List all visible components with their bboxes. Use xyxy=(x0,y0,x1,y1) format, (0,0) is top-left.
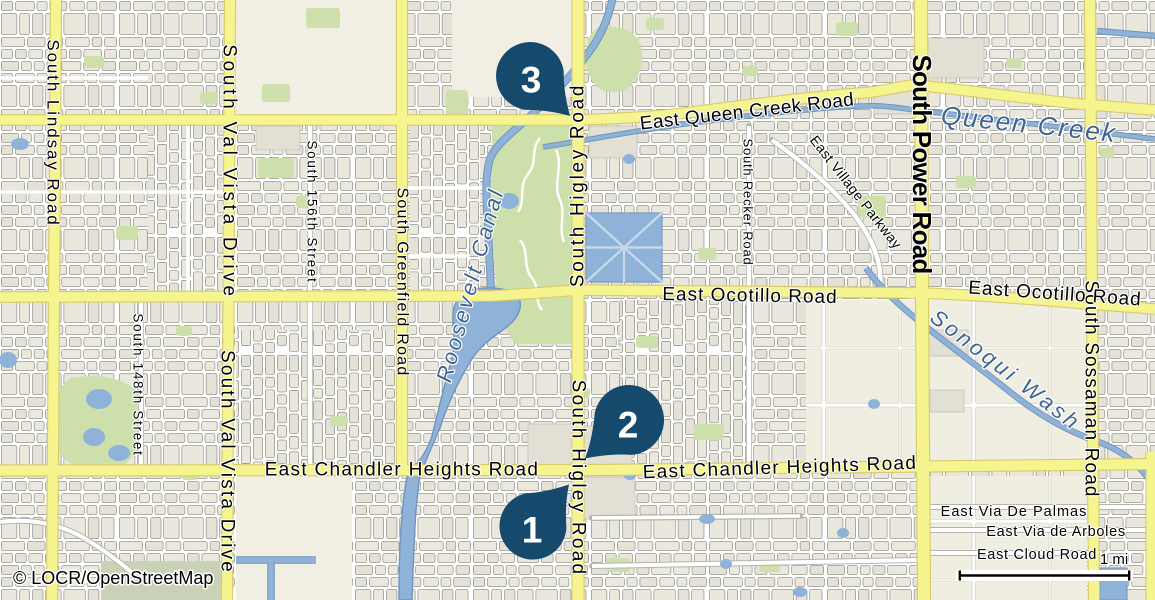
svg-text:South Lindsay Road: South Lindsay Road xyxy=(44,39,63,226)
svg-text:East Via De Palmas: East Via De Palmas xyxy=(941,504,1088,520)
svg-text:South Val Vista Drive: South Val Vista Drive xyxy=(219,44,240,299)
svg-text:1: 1 xyxy=(522,510,543,551)
svg-text:South 156th Street: South 156th Street xyxy=(305,140,320,283)
svg-text:East Cloud Road: East Cloud Road xyxy=(977,547,1097,563)
svg-text:South Recker Road: South Recker Road xyxy=(741,138,756,265)
svg-text:South 148th Street: South 148th Street xyxy=(131,313,146,456)
svg-text:South Greenfield Road: South Greenfield Road xyxy=(394,187,411,376)
svg-text:South Higley Road: South Higley Road xyxy=(568,380,589,577)
svg-text:© LOCR/OpenStreetMap: © LOCR/OpenStreetMap xyxy=(13,568,213,588)
svg-text:2: 2 xyxy=(618,405,639,446)
svg-text:East Via de Arboles: East Via de Arboles xyxy=(986,524,1126,540)
svg-text:1 mi: 1 mi xyxy=(1100,551,1128,568)
svg-text:East Chandler Heights Road: East Chandler Heights Road xyxy=(265,460,540,481)
svg-text:South Val Vista Drive: South Val Vista Drive xyxy=(217,350,238,574)
svg-text:South Power Road: South Power Road xyxy=(907,54,937,273)
svg-text:South Higley Road: South Higley Road xyxy=(568,83,589,287)
svg-text:South Sossaman Road: South Sossaman Road xyxy=(1081,280,1102,497)
svg-text:3: 3 xyxy=(521,60,542,101)
svg-text:East Ocotillo Road: East Ocotillo Road xyxy=(662,284,838,308)
